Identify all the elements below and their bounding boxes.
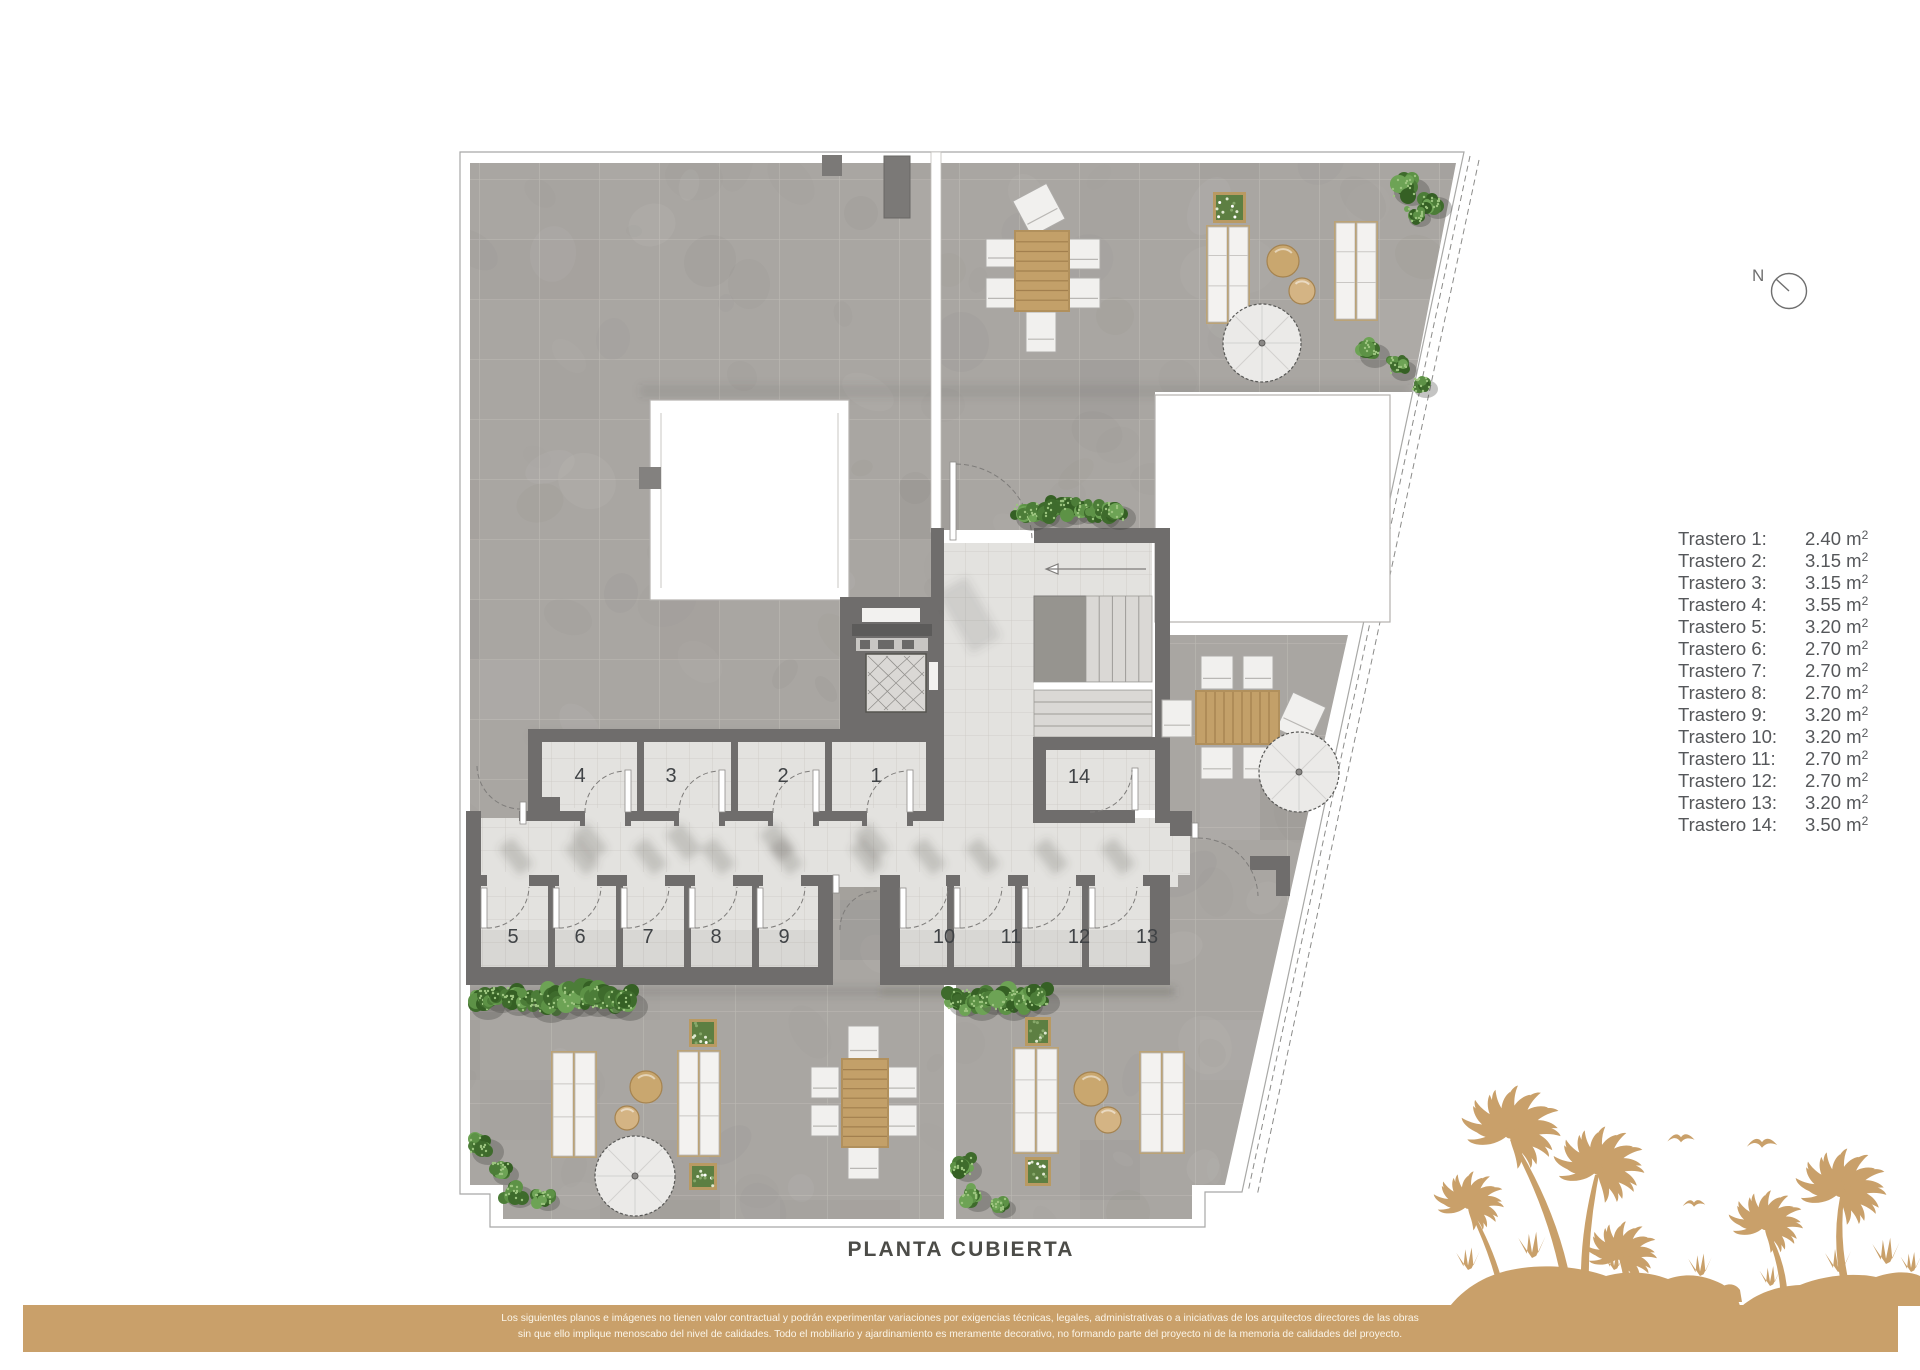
- svg-text:Trastero 11:: Trastero 11:: [1678, 748, 1776, 769]
- svg-text:Trastero 7:: Trastero 7:: [1678, 660, 1767, 681]
- svg-text:14: 14: [1068, 766, 1090, 788]
- svg-text:12: 12: [1068, 926, 1090, 948]
- svg-text:Trastero 14:: Trastero 14:: [1678, 814, 1777, 835]
- svg-text:Los siguientes planos e imágen: Los siguientes planos e imágenes no tien…: [501, 1313, 1419, 1324]
- svg-text:Trastero 9:: Trastero 9:: [1678, 704, 1767, 725]
- svg-text:3.20 m2: 3.20 m2: [1805, 726, 1869, 747]
- svg-text:13: 13: [1136, 926, 1158, 948]
- svg-text:Trastero 12:: Trastero 12:: [1678, 770, 1777, 791]
- svg-text:1: 1: [870, 765, 881, 787]
- svg-text:2.70 m2: 2.70 m2: [1805, 770, 1869, 791]
- svg-text:Trastero 10:: Trastero 10:: [1678, 726, 1777, 747]
- svg-text:N: N: [1752, 266, 1764, 285]
- svg-text:7: 7: [642, 926, 653, 948]
- svg-text:Trastero 8:: Trastero 8:: [1678, 682, 1767, 703]
- svg-text:2.70 m2: 2.70 m2: [1805, 638, 1869, 659]
- svg-text:Trastero 13:: Trastero 13:: [1678, 792, 1777, 813]
- svg-text:Trastero 1:: Trastero 1:: [1678, 528, 1767, 549]
- svg-text:sin que ello implique menoscab: sin que ello implique menoscabo del nive…: [518, 1329, 1402, 1340]
- svg-text:3.50 m2: 3.50 m2: [1805, 814, 1869, 835]
- svg-text:2.70 m2: 2.70 m2: [1805, 748, 1869, 769]
- svg-text:3.20 m2: 3.20 m2: [1805, 616, 1869, 637]
- svg-text:3.15 m2: 3.15 m2: [1805, 550, 1869, 571]
- svg-text:11: 11: [1001, 926, 1022, 948]
- svg-text:3.20 m2: 3.20 m2: [1805, 704, 1869, 725]
- svg-text:3: 3: [665, 765, 676, 787]
- svg-text:2: 2: [777, 765, 788, 787]
- svg-text:5: 5: [507, 926, 518, 948]
- svg-text:9: 9: [778, 926, 789, 948]
- svg-text:Trastero 2:: Trastero 2:: [1678, 550, 1767, 571]
- svg-text:Trastero 3:: Trastero 3:: [1678, 572, 1767, 593]
- svg-text:PLANTA CUBIERTA: PLANTA CUBIERTA: [847, 1238, 1074, 1261]
- svg-text:8: 8: [710, 926, 721, 948]
- svg-text:3.55 m2: 3.55 m2: [1805, 594, 1869, 615]
- svg-text:2.70 m2: 2.70 m2: [1805, 660, 1869, 681]
- svg-text:2.40 m2: 2.40 m2: [1805, 528, 1869, 549]
- svg-text:4: 4: [574, 765, 585, 787]
- svg-text:Trastero 4:: Trastero 4:: [1678, 594, 1767, 615]
- svg-text:6: 6: [574, 926, 585, 948]
- svg-text:10: 10: [933, 926, 955, 948]
- svg-text:Trastero 6:: Trastero 6:: [1678, 638, 1767, 659]
- svg-text:2.70 m2: 2.70 m2: [1805, 682, 1869, 703]
- svg-text:3.15 m2: 3.15 m2: [1805, 572, 1869, 593]
- svg-text:3.20 m2: 3.20 m2: [1805, 792, 1869, 813]
- svg-text:Trastero 5:: Trastero 5:: [1678, 616, 1767, 637]
